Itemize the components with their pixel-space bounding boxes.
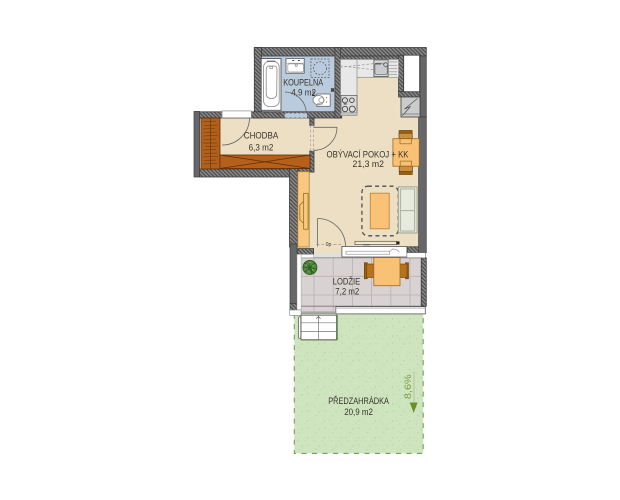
svg-text:CHODBA: CHODBA	[244, 130, 279, 141]
svg-text:8,6%: 8,6%	[403, 374, 414, 399]
svg-text:4,9 m2: 4,9 m2	[291, 88, 316, 98]
svg-text:PŘEDZAHRÁDKA: PŘEDZAHRÁDKA	[328, 396, 389, 407]
svg-text:21,3 m2: 21,3 m2	[353, 159, 384, 170]
svg-text:7,2 m2: 7,2 m2	[335, 286, 359, 297]
svg-text:6,3 m2: 6,3 m2	[249, 142, 274, 153]
svg-text:KOUPELNA: KOUPELNA	[283, 78, 324, 88]
svg-text:20,9 m2: 20,9 m2	[344, 407, 373, 418]
svg-text:0p: 0p	[326, 242, 332, 248]
